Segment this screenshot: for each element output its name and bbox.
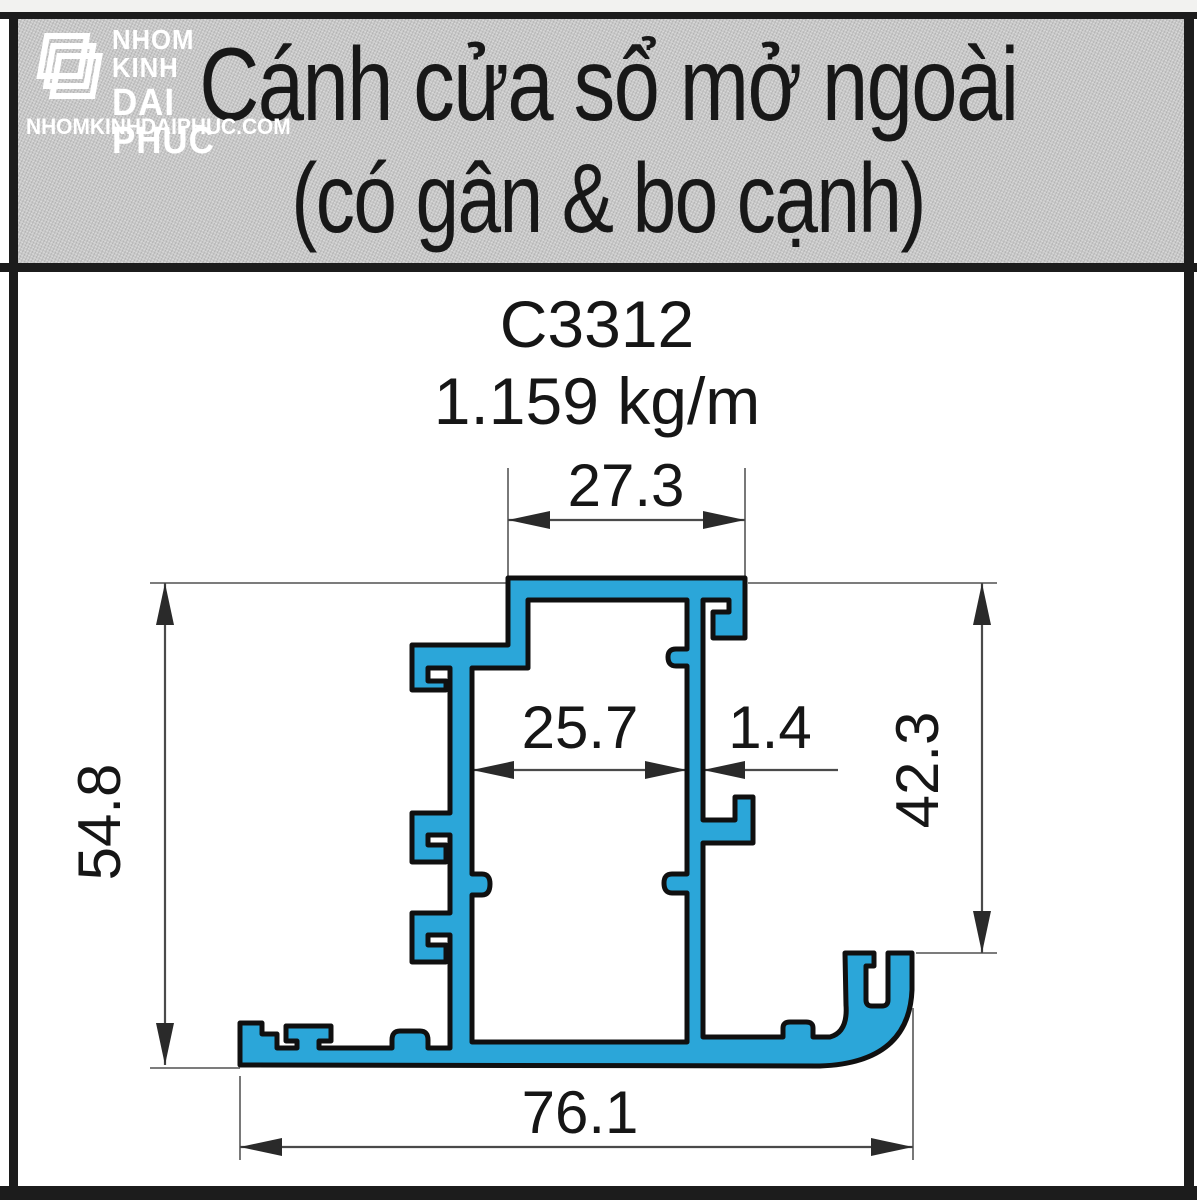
dim-overall-width: 76.1 (240, 1079, 913, 1156)
profile-cross-section (240, 578, 912, 1066)
dim-wall-thickness: 1.4 (703, 694, 838, 779)
dim-cavity-width: 25.7 (472, 694, 687, 779)
dim-overall-width-value: 76.1 (522, 1079, 639, 1146)
dim-overall-height: 54.8 (66, 583, 174, 1065)
dim-overall-height-value: 54.8 (66, 764, 133, 881)
dim-top-width-value: 27.3 (568, 452, 685, 519)
dim-top-width: 27.3 (508, 452, 745, 529)
dim-cavity-width-value: 25.7 (522, 694, 639, 761)
dim-wall-thickness-value: 1.4 (728, 694, 811, 761)
product-weight: 1.159 kg/m (434, 364, 761, 438)
product-code: C3312 (500, 287, 695, 361)
profile-technical-drawing: C3312 1.159 kg/m 27.3 25.7 (0, 0, 1197, 1200)
dim-right-height-value: 42.3 (884, 712, 951, 829)
dim-right-height: 42.3 (884, 583, 991, 953)
catalog-page: Cánh cửa sổ mở ngoài (có gân & bo cạnh) … (0, 0, 1197, 1200)
